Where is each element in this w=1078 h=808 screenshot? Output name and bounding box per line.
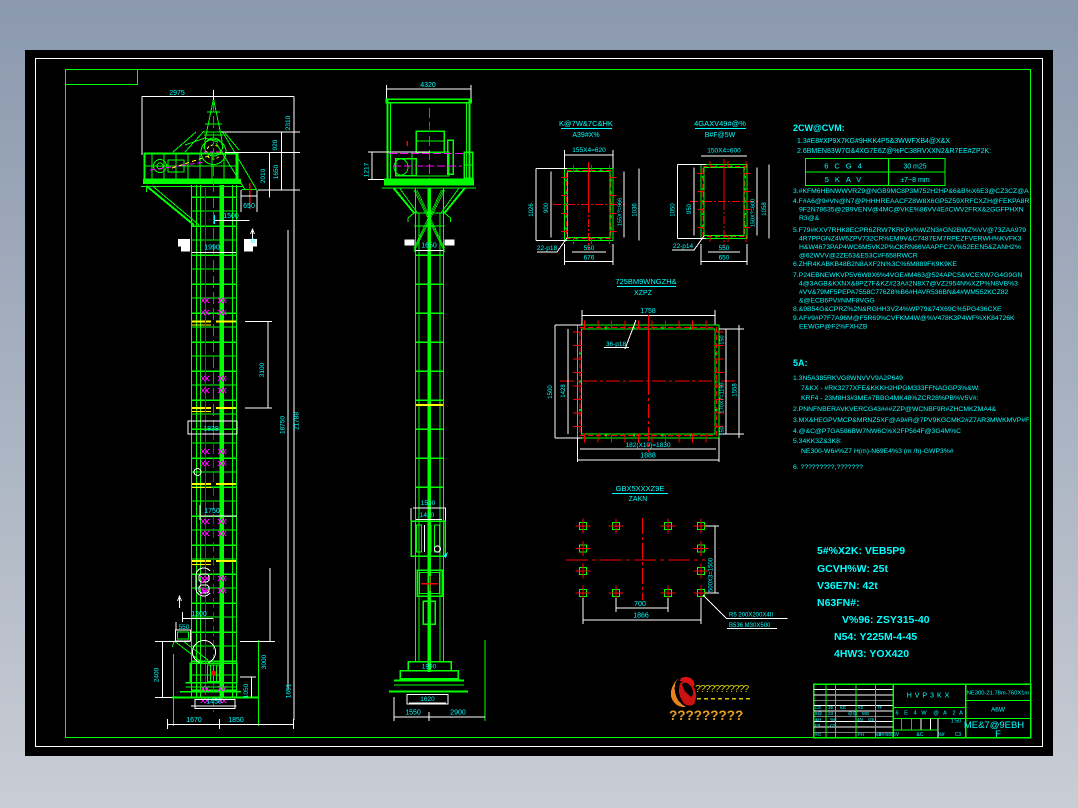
svg-text:GCVH%W: 25t: GCVH%W: 25t [817,563,888,575]
svg-text:1866: 1866 [633,613,649,620]
svg-text:8@: 8@ [815,711,823,716]
svg-text:36-p18: 36-p18 [606,341,627,348]
svg-text:C3: C3 [955,732,962,738]
svg-text:23: 23 [828,711,834,716]
svg-text:676: 676 [584,255,595,262]
svg-text:#VV&79MF5PEPA7558C776Z8%B6#HAV: #VV&79MF5PEPA7558C776Z8%B6#HAVR536BN&4#W… [799,289,1009,296]
svg-text:@62WVV@2ZE63&E53C#F658RWCR: @62WVV@2ZE63&E53C#F658RWCR [799,253,918,260]
svg-text:???????????: ??????????? [695,683,749,695]
svg-text:4320: 4320 [420,82,436,89]
svg-text:1990: 1990 [204,245,220,252]
svg-text:6V: 6V [893,732,900,738]
svg-text:@@: @@ [848,711,858,716]
svg-text:&H: &H [815,717,821,722]
svg-text:8.&9B54G&CPRZ%2N&RGHH3VZ4%WP79: 8.&9B54G&CPRZ%2N&RGHH3VZ4%WP79&74X69C%5P… [793,306,1002,313]
svg-text:1620: 1620 [420,696,435,703]
svg-text:1:50: 1:50 [951,719,962,725]
svg-text:150X?=600: 150X?=600 [751,199,757,227]
svg-text:±7~8 mm: ±7~8 mm [900,177,929,184]
svg-text:CE: CE [815,705,821,710]
svg-text:C5: C5 [830,723,836,728]
svg-text:B#F@5W: B#F@5W [705,132,736,139]
svg-text:3.#KFM6HBNWWVRZ9@NGB9MC8P3M752: 3.#KFM6HBNWWVRZ9@NGB9MC8P3M752H2HP&6&B%X… [793,188,1029,195]
svg-text:W: W [921,711,927,717]
svg-text:5#%X2K: VEB5P9: 5#%X2K: VEB5P9 [817,545,905,557]
svg-text:1550: 1550 [405,710,421,717]
svg-text:R3@&: R3@& [799,215,820,222]
svg-text:&C: &C [917,732,924,738]
svg-text:1558: 1558 [733,383,739,397]
svg-text:N54: Y225M-4-45: N54: Y225M-4-45 [834,631,917,643]
svg-text:ME&7@9EBH: ME&7@9EBH [964,720,1024,731]
svg-text:22-p18: 22-p18 [537,245,558,252]
svg-text:3100: 3100 [259,362,266,377]
svg-text:1651: 1651 [286,683,293,698]
svg-text:1428: 1428 [561,384,567,398]
svg-text:155X?=966: 155X?=966 [618,198,624,226]
svg-text:&@ECB6PV#NMF8VGG: &@ECB6PV#NMF8VGG [799,298,875,305]
svg-text:%#: %# [937,732,944,738]
svg-text:FH: FH [858,732,864,737]
svg-text:A: A [959,711,963,717]
svg-text:A: A [943,711,947,717]
svg-text:1530: 1530 [421,500,436,507]
svg-text:1990: 1990 [422,664,437,671]
svg-text:170X7=1190: 170X7=1190 [720,383,726,414]
svg-text:900: 900 [544,202,550,213]
svg-text:2: 2 [952,711,955,717]
svg-text:18750: 18750 [280,416,287,434]
svg-text:1670: 1670 [186,717,202,724]
svg-text:1750: 1750 [204,508,220,515]
svg-text:650: 650 [243,203,255,210]
svg-text:?????????: ????????? [669,708,743,723]
svg-text:4: 4 [913,711,916,717]
svg-text:21788: 21788 [294,412,301,430]
svg-text:182(X10)=1830: 182(X10)=1830 [626,442,671,449]
svg-text:4GAXV49#@%: 4GAXV49#@% [694,119,746,128]
svg-text:ZAKN: ZAKN [629,496,648,503]
svg-text:B: B [251,239,255,245]
svg-text:4R7PPGNZ4W6ZPV732CR%EM9V&C7487: 4R7PPGNZ4W6ZPV732CR%EM9V&C7487EM7RPEZFVE… [799,236,1022,243]
svg-text:3.MX&HEGPVMCP&MRNZ5XF@A9#R@7PV: 3.MX&HEGPVMCP&MRNZ5XF@A9#R@7PV9KGCMK2#Z7… [793,417,1029,424]
svg-text:1.3N5A385RKVG8WNVVV9A2P649: 1.3N5A385RKVG8WNVVV9A2P649 [793,375,903,382]
svg-text:2975: 2975 [169,90,185,97]
svg-text:5.F79#KXV7RHK8ECPR6ZRW7KRKP#%W: 5.F79#KXV7RHK8ECPR6ZRW7KRKP#%WZN3#GN2BWZ… [793,227,1026,234]
svg-text:150X4=600: 150X4=600 [707,148,741,155]
svg-text:KE: KE [840,705,846,710]
svg-text:1026: 1026 [529,203,535,217]
svg-text:2900: 2900 [450,710,466,717]
svg-text:22-p14: 22-p14 [673,243,694,250]
svg-text:3E: 3E [828,705,834,710]
svg-text:1217: 1217 [364,162,371,177]
svg-text:7F: 7F [877,705,883,710]
svg-text:1.3#E8#XP9X7KG#9HKK4P5&3WWFXB4: 1.3#E8#XP9X7KG#9HKK4P5&3WWFXB4@X&X [797,138,950,145]
svg-text:4HW3: YOX420: 4HW3: YOX420 [834,648,909,660]
svg-text:9F2N78635@2B9VENV@4MC@VKE%86VV: 9F2N78635@2B9VENV@4MC@VKE%86VV4E#CWV2FRX… [799,207,1024,214]
svg-text:700: 700 [634,601,646,608]
svg-text:%6: %6 [830,717,837,722]
svg-text:1300: 1300 [191,611,207,618]
svg-text:6: 6 [895,711,898,717]
svg-text:@: @ [933,711,939,717]
svg-text:R5 200X200X4II: R5 200X200X4II [729,613,773,619]
svg-text:1050: 1050 [243,683,250,698]
svg-text:F: F [995,729,1001,740]
svg-text:8Yr500: 8Yr500 [879,732,894,737]
svg-text:1050: 1050 [671,203,677,217]
svg-text:7&KX - #RK3277XFE&KKKH2HPGM333: 7&KX - #RK3277XFE&KKKH2HPGM333FFNAGGP3%&… [801,385,980,392]
svg-text:2CW@CVM:: 2CW@CVM: [793,123,845,133]
svg-text:1650: 1650 [273,164,280,179]
svg-text:550: 550 [584,245,595,252]
svg-text:F9: F9 [815,723,821,728]
svg-text:150: 150 [720,335,726,344]
svg-text:3000: 3000 [261,654,268,669]
svg-text:4.@&C@P7GA586BW7NW6C%X2FP564F@: 4.@&C@P7GA586BW7NW6C%X2FP564F@3G4M%C [793,428,961,435]
svg-text:1888: 1888 [640,453,656,460]
svg-text:1430: 1430 [420,512,435,519]
svg-text:2.6BMEN83W7G&4XG7E6Z@%PC38RVXX: 2.6BMEN83W7G&4XG7E6Z@%PC38RVXXN2&R7EE#ZP… [797,148,991,155]
svg-text:4N: 4N [857,717,863,722]
svg-text:G9: G9 [868,717,875,722]
svg-text:V%96: ZSY315-40: V%96: ZSY315-40 [842,614,930,626]
svg-text:E: E [904,711,908,717]
svg-text:500X3=1500: 500X3=1500 [709,557,715,592]
svg-text:GBX5XXXZ9E: GBX5XXXZ9E [616,484,665,493]
svg-text:NE300-21.78m-760X1m: NE300-21.78m-760X1m [967,691,1030,697]
svg-text:1500: 1500 [548,385,554,399]
svg-text:N63FN#:: N63FN#: [817,597,860,609]
svg-text:920: 920 [272,139,279,150]
svg-text:5A:: 5A: [793,358,808,368]
svg-text:150: 150 [720,426,726,435]
svg-text:EEWGP@F2%FXHZB: EEWGP@F2%FXHZB [799,324,868,331]
svg-text:550: 550 [719,245,730,252]
svg-text:1036: 1036 [633,203,639,217]
svg-text:4.F#A6@9#VN@N7@PHHHREAACFZ8W8X: 4.F#A6@9#VN@N7@PHHHREAACFZ8W8X6GP5Z59XRF… [793,198,1029,205]
svg-text:7.P24EBNEWKVP5V6W8X6%4VGE#M463: 7.P24EBNEWKVP5V6W8X6%4VGE#M463@524APC5&V… [793,272,1023,279]
svg-text:A39#X%: A39#X% [572,132,599,139]
svg-text:6. ?????????,???????: 6. ?????????,??????? [793,464,863,471]
svg-text:6.ZHR4KABKB48B2N8AXF2N%3C%6M88: 6.ZHR4KABKB48B2N8AXF2N%3C%6M889FK9K9KE [793,261,957,268]
svg-text:#G: #G [815,732,822,737]
svg-text:V36E7N: 42t: V36E7N: 42t [817,580,878,592]
svg-text:K@7W&7C&HK: K@7W&7C&HK [559,119,613,128]
svg-text:5.34KK3Z&3K8:: 5.34KK3Z&3K8: [793,438,842,445]
svg-text:1650: 1650 [421,243,437,250]
svg-text:9.AF#9#P7F7A96M@F5R69%CVFKM4W@: 9.AF#9#P7F7A96M@F5R69%CVFKM4W@%V478K3P4W… [793,315,1015,322]
svg-text:30 m25: 30 m25 [903,164,926,171]
svg-text:725BM9WNGZH&: 725BM9WNGZH& [615,277,676,286]
svg-text:#Z: #Z [858,705,864,710]
svg-text:1850: 1850 [228,717,244,724]
svg-text:1500: 1500 [223,213,239,220]
svg-text:HVP3KX: HVP3KX [907,693,953,700]
svg-text:2.PNNFNBERAVKVERCG43###ZZP@WCN: 2.PNNFNBERAVKVERCG43###ZZP@WCNBF9R#ZHCMK… [793,406,997,413]
svg-text:MG: MG [862,711,870,716]
svg-text:1058: 1058 [762,202,768,216]
svg-text:4@3AGB&KXNX&8PZ7F&KZ#23A#2N8X7: 4@3AGB&KXNX&8PZ7F&KZ#23A#2N8X7@VZ2954N%X… [799,281,1018,288]
svg-text:KRF4 - 23M8H3#3ME#7BBG4MK48%ZC: KRF4 - 23M8H3#3ME#7BBG4MK48%ZCR28%PB%V5V… [801,395,979,402]
svg-text:A6W: A6W [991,707,1006,714]
svg-text:2010: 2010 [260,168,267,183]
svg-text:2400: 2400 [154,667,161,682]
svg-text:155X4=620: 155X4=620 [572,147,606,154]
svg-text:H&W4673PAP4WC6M5VK2P%CKRN66VAA: H&W4673PAP4WC6M5VK2P%CKRN66VAAPFC2V%52EE… [799,244,1021,251]
svg-text:1758: 1758 [640,308,656,315]
svg-text:NE300-W6#%Z7 H(m)-N69E4%3 (m: NE300-W6#%Z7 H(m)-N69E4%3 (m /h)-GWP3%# [801,448,954,455]
svg-text:1838: 1838 [203,426,219,433]
svg-text:5KAV: 5KAV [825,175,868,184]
svg-text:6CG4: 6CG4 [824,162,868,171]
svg-text:XZPZ: XZPZ [634,290,653,297]
svg-text:2310: 2310 [285,115,292,130]
svg-text:650: 650 [719,255,730,262]
svg-text:950: 950 [687,203,693,214]
